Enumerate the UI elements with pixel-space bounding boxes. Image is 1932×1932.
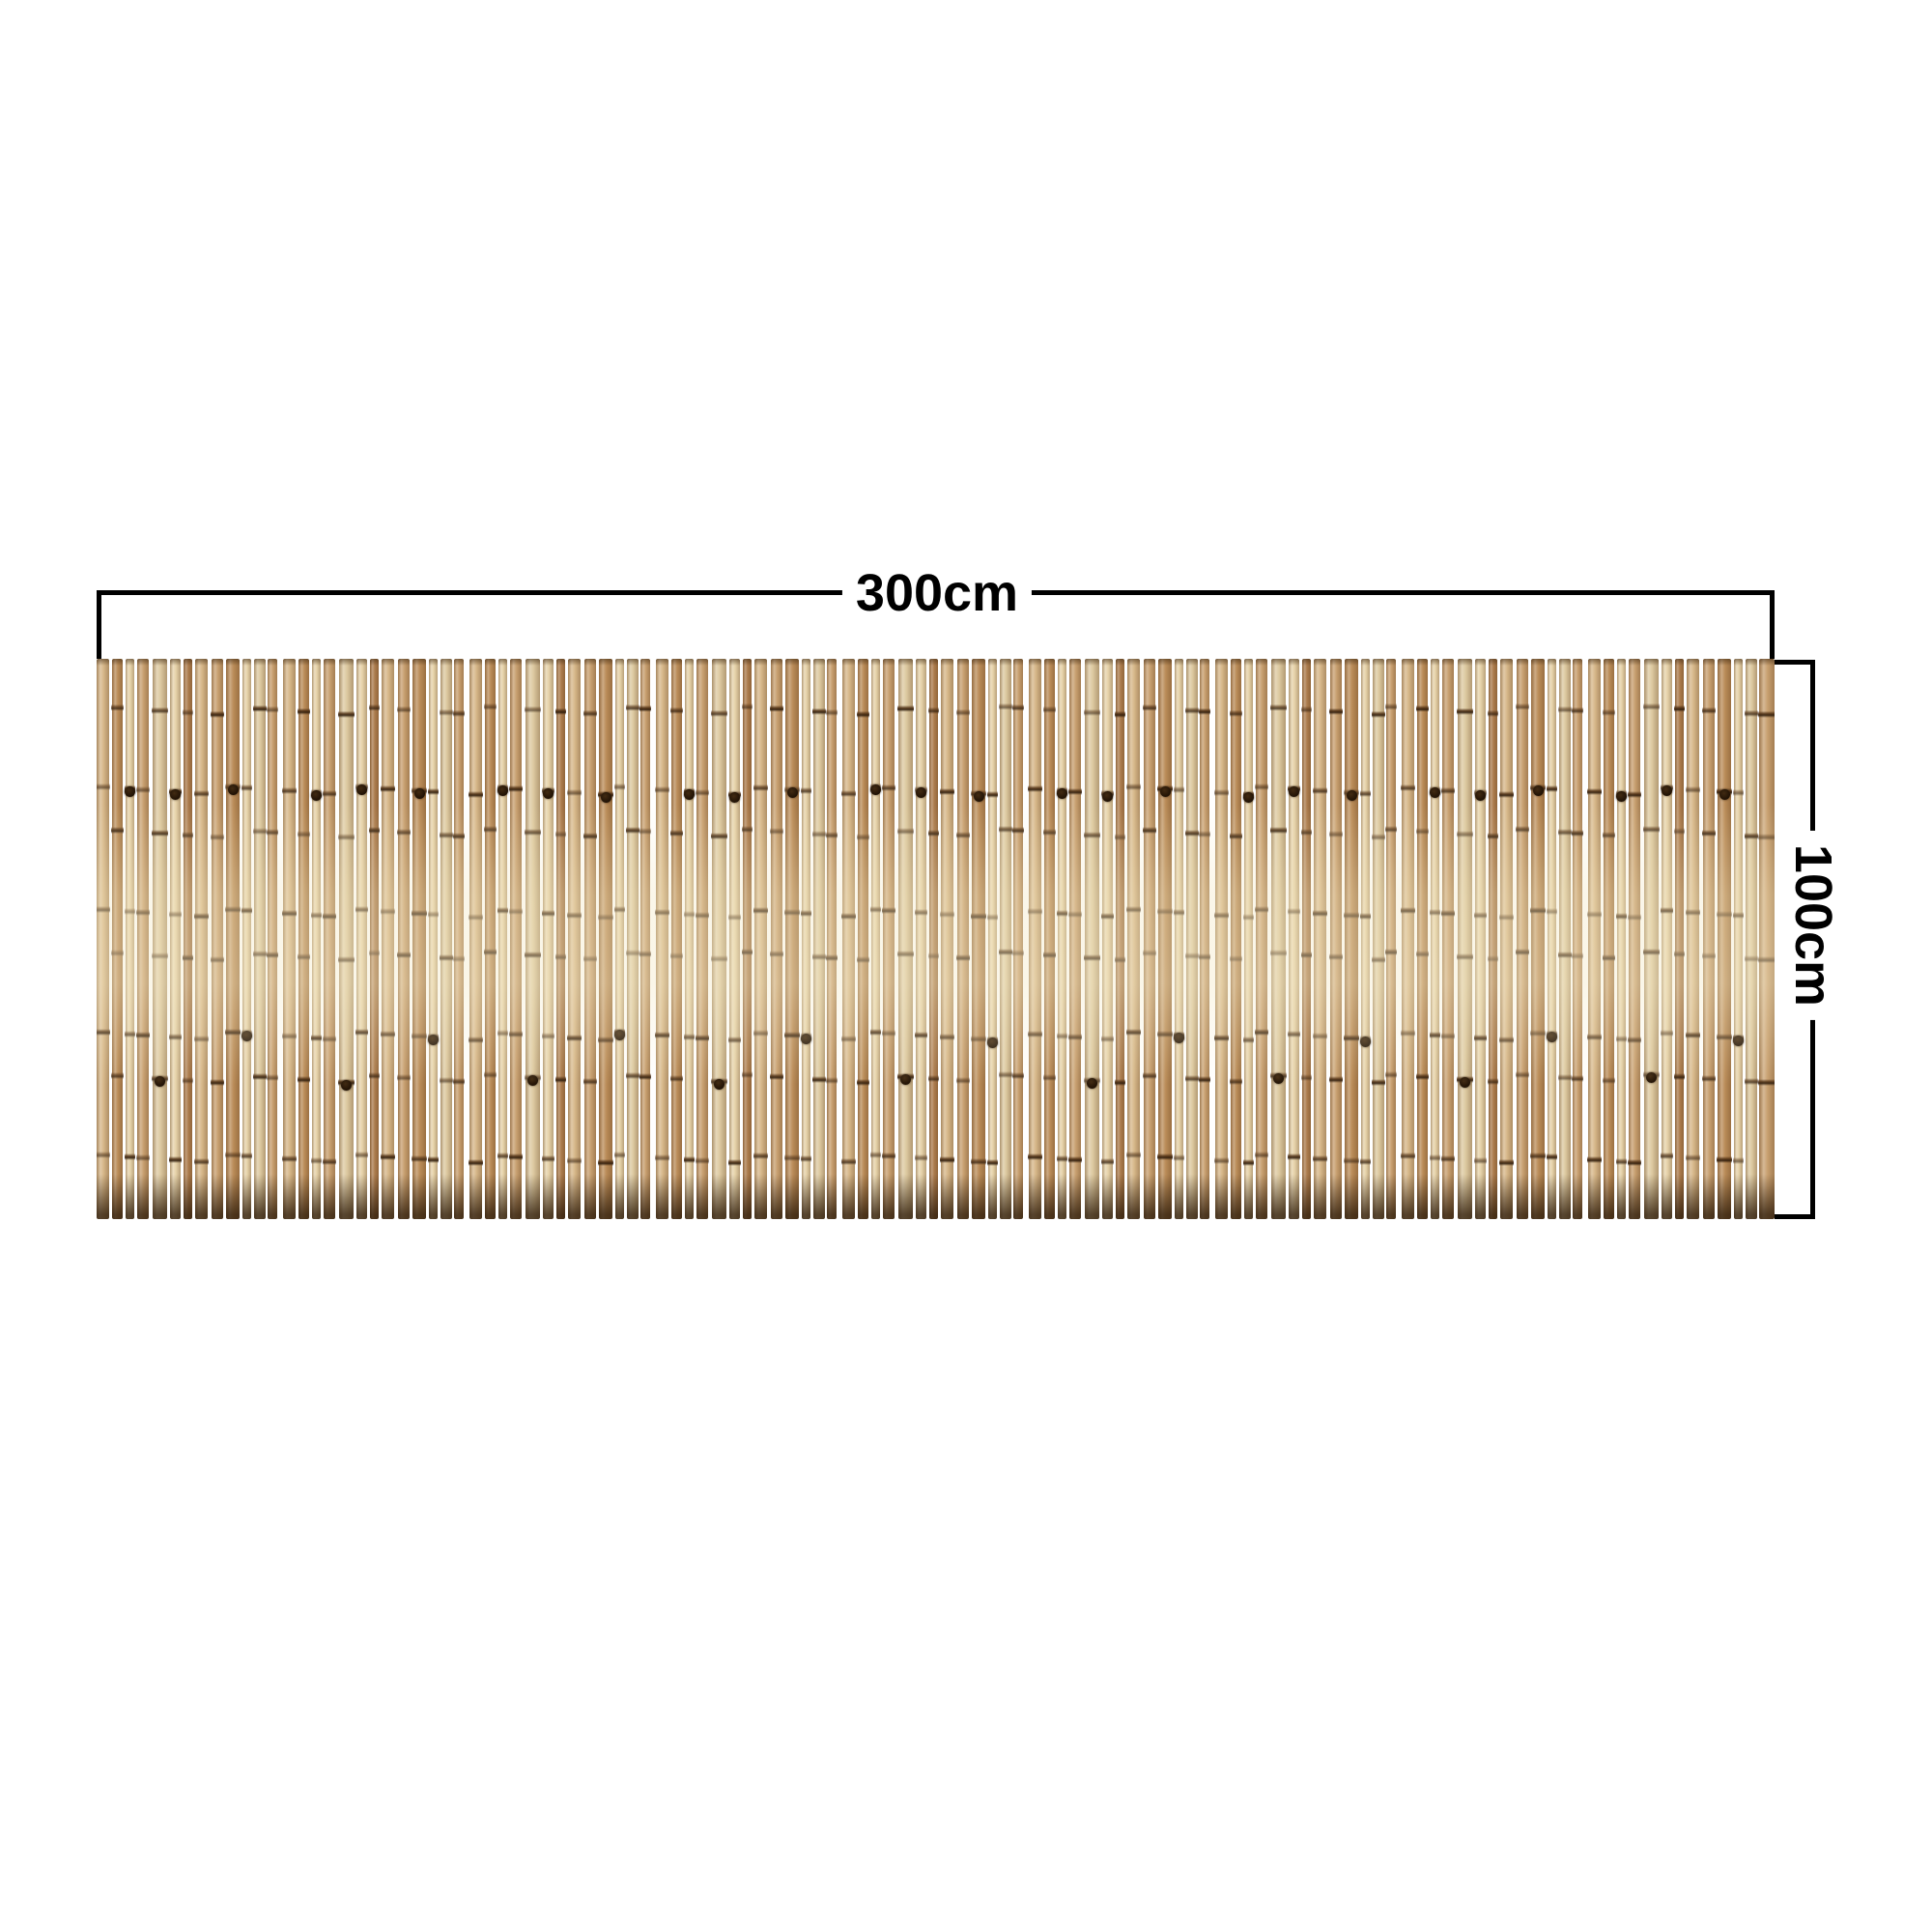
bamboo-node — [1329, 708, 1343, 715]
bamboo-node — [812, 953, 826, 960]
bamboo-node — [583, 710, 597, 717]
bamboo-node — [1344, 1157, 1359, 1164]
bamboo-slat — [356, 659, 367, 1219]
bamboo-node — [1115, 834, 1125, 840]
bamboo-node — [1674, 828, 1685, 835]
bamboo-knot — [1533, 785, 1544, 796]
bamboo-slat — [941, 659, 953, 1219]
bamboo-slat — [1069, 659, 1081, 1219]
bamboo-node — [1572, 952, 1583, 959]
bamboo-knot — [527, 1075, 538, 1086]
bamboo-node — [397, 706, 411, 713]
bamboo-knot — [916, 787, 926, 798]
bamboo-node — [1674, 1073, 1685, 1080]
bamboo-slat — [1085, 659, 1099, 1219]
bamboo-node — [1686, 1032, 1700, 1038]
bamboo-node — [1488, 710, 1498, 717]
bamboo-node — [1115, 711, 1125, 718]
bamboo-node — [753, 1152, 768, 1159]
bamboo-node — [1416, 1073, 1429, 1080]
bamboo-node — [1385, 703, 1397, 710]
bamboo-knot — [801, 1034, 811, 1044]
bamboo-node — [194, 790, 209, 797]
bamboo-node — [1214, 1157, 1229, 1164]
bamboo-node — [1360, 790, 1371, 797]
bamboo-slat — [1588, 659, 1601, 1219]
bamboo-node — [1329, 831, 1343, 838]
bamboo-knot — [1547, 1032, 1557, 1042]
bamboo-knot — [1662, 785, 1672, 796]
bamboo-node — [1313, 1155, 1327, 1162]
bamboo-node — [1329, 953, 1343, 960]
bamboo-node — [1558, 829, 1572, 836]
bamboo-node — [728, 914, 741, 921]
bamboo-knot — [1102, 791, 1113, 802]
bamboo-node — [509, 908, 523, 915]
bamboo-node — [169, 911, 182, 918]
bamboo-slat — [1000, 659, 1011, 1219]
bamboo-slat — [556, 659, 565, 1219]
bamboo-node — [639, 1073, 651, 1080]
bamboo-node — [1243, 1159, 1254, 1166]
width-dimension-label: 300cm — [842, 565, 1032, 621]
bamboo-node — [484, 1071, 497, 1078]
bamboo-node — [267, 1074, 278, 1081]
bamboo-node — [152, 952, 168, 959]
bamboo-node — [311, 912, 322, 919]
bamboo-node — [311, 1157, 322, 1164]
bamboo-node — [1199, 953, 1210, 960]
bamboo-node — [1603, 832, 1615, 838]
bamboo-node — [355, 906, 368, 913]
bamboo-node — [956, 832, 970, 838]
bamboo-node — [1474, 1157, 1487, 1164]
bamboo-node — [542, 1155, 554, 1162]
bamboo-node — [567, 912, 582, 919]
bamboo-slat — [1531, 659, 1545, 1219]
bamboo-node — [397, 1074, 411, 1081]
bamboo-slat — [1373, 659, 1384, 1219]
bamboo-node — [1572, 1075, 1583, 1082]
bamboo-slat — [312, 659, 321, 1219]
bamboo-node — [1344, 1035, 1359, 1041]
bamboo-node — [542, 1033, 554, 1039]
bamboo-knot — [1733, 1036, 1744, 1046]
bamboo-knot — [714, 1079, 724, 1090]
bamboo-node — [298, 708, 310, 715]
bamboo-slat — [1604, 659, 1614, 1219]
bamboo-slat — [1718, 659, 1731, 1219]
bamboo-slat — [1215, 659, 1228, 1219]
bamboo-node — [1661, 1030, 1673, 1037]
bamboo-node — [1174, 1154, 1184, 1161]
bamboo-node — [1360, 913, 1371, 920]
bamboo-slat — [1231, 659, 1241, 1219]
bamboo-node — [469, 1159, 483, 1166]
bamboo-node — [1745, 1078, 1758, 1085]
bamboo-slat — [883, 659, 895, 1219]
bamboo-node — [542, 910, 554, 917]
bamboo-node — [555, 831, 566, 838]
bamboo-knot — [341, 1080, 352, 1091]
bamboo-node — [1441, 910, 1455, 917]
bamboo-knot — [1460, 1077, 1470, 1088]
bamboo-node — [784, 1032, 800, 1038]
bamboo-node — [111, 1072, 124, 1079]
bamboo-node — [753, 907, 768, 914]
bamboo-node — [323, 1158, 336, 1165]
bamboo-slat — [1759, 659, 1775, 1219]
height-dimension-tick-top — [1775, 660, 1815, 665]
bamboo-node — [1301, 706, 1312, 713]
bamboo-node — [784, 909, 800, 916]
bamboo-node — [211, 834, 224, 840]
bamboo-node — [696, 912, 709, 919]
bamboo-slat — [112, 659, 123, 1219]
bamboo-node — [1057, 910, 1067, 917]
bamboo-node — [97, 783, 110, 790]
bamboo-node — [841, 790, 856, 797]
bamboo-node — [915, 1154, 927, 1161]
bamboo-node — [639, 828, 651, 835]
bamboo-knot — [1646, 1072, 1657, 1083]
bamboo-slat — [1431, 659, 1439, 1219]
bamboo-node — [614, 906, 625, 913]
bamboo-node — [1012, 827, 1024, 834]
bamboo-node — [1230, 833, 1242, 839]
bamboo-node — [711, 710, 727, 717]
bamboo-knot — [155, 1076, 165, 1087]
bamboo-node — [282, 1155, 297, 1162]
bamboo-slat — [1186, 659, 1198, 1219]
bamboo-node — [136, 1032, 150, 1038]
bamboo-slat — [1500, 659, 1513, 1219]
bamboo-node — [626, 1072, 639, 1079]
bamboo-node — [484, 703, 497, 710]
bamboo-node — [555, 708, 566, 715]
bamboo-slat — [1662, 659, 1672, 1219]
bamboo-slat — [1629, 659, 1640, 1219]
bamboo-node — [655, 909, 669, 916]
bamboo-node — [1126, 1151, 1141, 1158]
bamboo-node — [497, 1152, 508, 1159]
bamboo-slat — [242, 659, 251, 1219]
bamboo-node — [355, 1029, 368, 1036]
bamboo-node — [1733, 789, 1744, 796]
bamboo-node — [1385, 949, 1397, 955]
bamboo-node — [111, 950, 124, 956]
bamboo-slat — [1314, 659, 1326, 1219]
bamboo-node — [1430, 1032, 1440, 1038]
bamboo-node — [841, 913, 856, 920]
bamboo-node — [169, 1034, 182, 1040]
bamboo-slat — [526, 659, 540, 1219]
bamboo-node — [1385, 826, 1397, 833]
bamboo-node — [1616, 1158, 1627, 1165]
bamboo-slat — [153, 659, 167, 1219]
bamboo-node — [928, 1075, 939, 1082]
bamboo-node — [412, 910, 427, 917]
bamboo-node — [670, 707, 683, 714]
bamboo-slat — [802, 659, 810, 1219]
bamboo-slat — [858, 659, 868, 1219]
bamboo-node — [999, 826, 1012, 833]
bamboo-node — [125, 1153, 135, 1160]
bamboo-knot — [987, 1037, 998, 1048]
bamboo-node — [1068, 911, 1082, 918]
bamboo-node — [1628, 914, 1641, 921]
bamboo-node — [1360, 1158, 1371, 1165]
bamboo-knot — [1475, 790, 1486, 801]
bamboo-node — [484, 949, 497, 955]
bamboo-slat — [324, 659, 335, 1219]
bamboo-node — [1717, 1034, 1732, 1040]
bamboo-slat — [627, 659, 639, 1219]
bamboo-node — [940, 1034, 954, 1040]
bamboo-slat — [712, 659, 726, 1219]
bamboo-node — [1516, 949, 1529, 955]
bamboo-knot — [170, 789, 181, 800]
bamboo-slat — [226, 659, 240, 1219]
bamboo-node — [583, 1078, 597, 1085]
bamboo-node — [857, 1079, 869, 1086]
bamboo-node — [956, 709, 970, 716]
bamboo-node — [397, 952, 411, 958]
bamboo-knot — [601, 792, 611, 803]
bamboo-node — [1288, 1153, 1300, 1160]
bamboo-slat — [370, 659, 379, 1219]
bamboo-node — [1643, 703, 1660, 710]
bamboo-slat — [1244, 659, 1253, 1219]
bamboo-node — [1214, 789, 1229, 796]
bamboo-node — [125, 908, 135, 915]
bamboo-node — [225, 1029, 241, 1036]
bamboo-slat — [184, 659, 192, 1219]
bamboo-node — [1084, 709, 1100, 716]
bamboo-node — [1084, 832, 1100, 838]
bamboo-node — [323, 790, 336, 797]
bamboo-node — [857, 711, 869, 718]
bamboo-slat — [827, 659, 837, 1219]
bamboo-node — [1230, 710, 1242, 717]
bamboo-node — [770, 1073, 783, 1080]
bamboo-node — [1028, 1031, 1042, 1037]
bamboo-slat — [1271, 659, 1286, 1219]
bamboo-node — [1288, 1031, 1300, 1037]
bamboo-node — [381, 1031, 395, 1037]
bamboo-node — [1558, 952, 1572, 958]
bamboo-node — [655, 1154, 669, 1161]
bamboo-node — [1643, 949, 1660, 955]
bamboo-node — [1199, 1076, 1210, 1083]
bamboo-node — [1372, 711, 1385, 718]
bamboo-node — [1068, 1156, 1082, 1163]
bamboo-node — [1416, 705, 1429, 712]
bamboo-slat — [429, 659, 438, 1219]
bamboo-node — [956, 1077, 970, 1084]
bamboo-slat — [298, 659, 309, 1219]
bamboo-node — [267, 952, 278, 958]
bamboo-node — [915, 1032, 927, 1038]
bamboo-node — [1174, 786, 1184, 793]
bamboo-node — [870, 1029, 881, 1036]
bamboo-knot — [684, 789, 695, 800]
bamboo-node — [453, 833, 465, 839]
bamboo-node — [469, 1037, 483, 1043]
bamboo-node — [453, 1078, 465, 1085]
bamboo-node — [111, 704, 124, 711]
bamboo-node — [801, 787, 811, 794]
bamboo-node — [655, 1032, 669, 1038]
bamboo-node — [440, 709, 453, 716]
bamboo-slat — [771, 659, 782, 1219]
bamboo-node — [1702, 707, 1716, 714]
bamboo-node — [1043, 829, 1056, 836]
width-dimension-tick-right — [1770, 590, 1775, 659]
bamboo-node — [812, 708, 826, 715]
bamboo-node — [770, 828, 783, 835]
bamboo-node — [1243, 914, 1254, 921]
bamboo-slat — [1116, 659, 1124, 1219]
bamboo-knot — [1430, 787, 1440, 798]
bamboo-node — [381, 1153, 395, 1160]
bamboo-node — [882, 907, 895, 914]
bamboo-node — [1084, 954, 1100, 961]
bamboo-node — [1702, 830, 1716, 837]
bamboo-node — [742, 1071, 753, 1078]
bamboo-node — [136, 1154, 150, 1161]
bamboo-node — [1516, 703, 1529, 710]
bamboo-node — [801, 910, 811, 917]
bamboo-node — [1587, 911, 1602, 918]
bamboo-slat — [1058, 659, 1066, 1219]
bamboo-panel — [97, 659, 1775, 1219]
bamboo-node — [598, 1159, 613, 1166]
bamboo-node — [1628, 1159, 1641, 1166]
bamboo-node — [1530, 1030, 1546, 1037]
bamboo-node — [1157, 1153, 1173, 1160]
bamboo-node — [525, 706, 541, 713]
bamboo-node — [626, 827, 639, 834]
bamboo-node — [1686, 786, 1700, 793]
bamboo-node — [1488, 955, 1498, 962]
bamboo-node — [728, 1037, 741, 1043]
bamboo-node — [1572, 707, 1583, 714]
bamboo-node — [1441, 1155, 1455, 1162]
bamboo-node — [626, 704, 639, 711]
bamboo-node — [211, 1079, 224, 1086]
bamboo-node — [1733, 1157, 1744, 1164]
bamboo-node — [1028, 1153, 1042, 1160]
bamboo-node — [1115, 956, 1125, 963]
bamboo-knot — [1360, 1037, 1371, 1047]
bamboo-knot — [900, 1074, 911, 1085]
bamboo-node — [956, 954, 970, 961]
bamboo-node — [1758, 711, 1775, 718]
bamboo-node — [225, 906, 241, 913]
bamboo-slat — [1256, 659, 1267, 1219]
bamboo-node — [111, 827, 124, 834]
bamboo-node — [971, 913, 986, 920]
bamboo-node — [369, 1072, 380, 1079]
bamboo-slat — [1644, 659, 1659, 1219]
bamboo-knot — [729, 792, 740, 803]
bamboo-slat — [283, 659, 296, 1219]
bamboo-node — [1313, 787, 1327, 794]
bamboo-node — [1628, 791, 1641, 798]
bamboo-node — [152, 830, 168, 837]
bamboo-node — [1301, 952, 1312, 958]
bamboo-node — [770, 705, 783, 712]
bamboo-node — [1702, 952, 1716, 959]
bamboo-node — [1758, 834, 1775, 840]
bamboo-node — [484, 826, 497, 833]
bamboo-node — [440, 832, 453, 838]
bamboo-slat — [916, 659, 926, 1219]
bamboo-node — [626, 950, 639, 956]
bamboo-node — [583, 833, 597, 839]
bamboo-node — [1499, 791, 1514, 798]
bamboo-node — [1288, 908, 1300, 915]
bamboo-node — [1558, 706, 1572, 713]
bamboo-node — [1255, 1151, 1268, 1158]
bamboo-node — [1270, 950, 1287, 956]
bamboo-node — [298, 1076, 310, 1083]
bamboo-slat — [754, 659, 767, 1219]
bamboo-slat — [1687, 659, 1699, 1219]
bamboo-node — [241, 907, 252, 914]
bamboo-slat — [1175, 659, 1183, 1219]
bamboo-node — [928, 952, 939, 959]
bamboo-node — [1616, 1036, 1627, 1042]
bamboo-slat — [454, 659, 464, 1219]
bamboo-slat — [1489, 659, 1497, 1219]
bamboo-node — [497, 907, 508, 914]
bamboo-node — [1745, 955, 1758, 962]
bamboo-node — [940, 1156, 954, 1163]
bamboo-node — [987, 914, 998, 921]
bamboo-node — [1401, 1030, 1415, 1037]
bamboo-node — [1126, 1029, 1141, 1036]
bamboo-knot — [1160, 786, 1171, 797]
bamboo-node — [1547, 785, 1557, 792]
bamboo-slat — [382, 659, 394, 1219]
bamboo-node — [897, 951, 914, 957]
bamboo-node — [1628, 1037, 1641, 1043]
bamboo-node — [253, 1073, 267, 1080]
bamboo-node — [670, 830, 683, 837]
bamboo-slat — [1417, 659, 1428, 1219]
bamboo-node — [323, 1036, 336, 1042]
bamboo-node — [381, 785, 395, 792]
bamboo-slat — [137, 659, 149, 1219]
bamboo-node — [598, 914, 613, 921]
bamboo-node — [742, 703, 753, 710]
bamboo-node — [1199, 831, 1210, 838]
bamboo-slat — [1044, 659, 1055, 1219]
bamboo-node — [497, 1030, 508, 1037]
bamboo-node — [412, 1033, 427, 1039]
bamboo-node — [1416, 951, 1429, 957]
bamboo-node — [1603, 709, 1615, 716]
bamboo-node — [1043, 706, 1056, 713]
bamboo-slat — [1703, 659, 1715, 1219]
bamboo-node — [1301, 829, 1312, 836]
bamboo-slat — [584, 659, 596, 1219]
bamboo-node — [369, 704, 380, 711]
bamboo-node — [298, 953, 310, 960]
bamboo-slat — [469, 659, 482, 1219]
